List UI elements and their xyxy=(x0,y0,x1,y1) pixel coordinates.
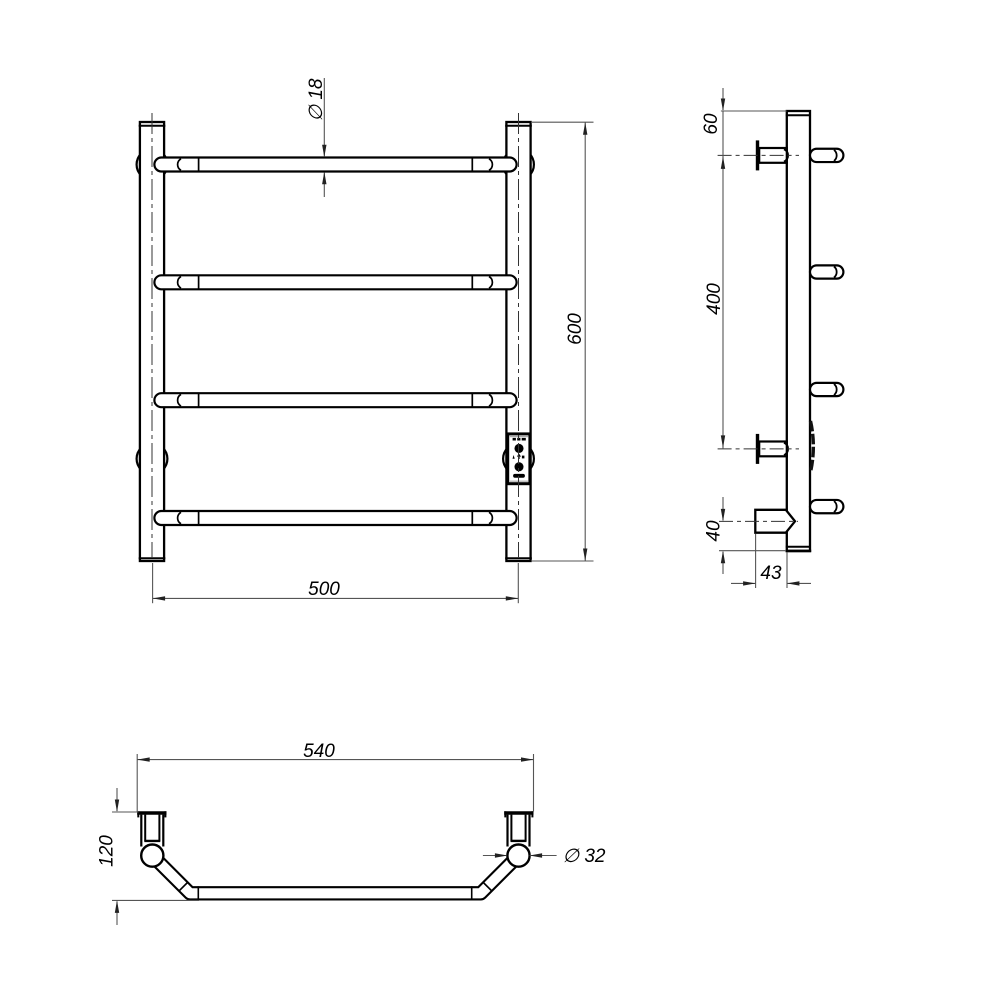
svg-text:∅ 18: ∅ 18 xyxy=(306,78,327,121)
svg-text:540: 540 xyxy=(303,741,335,762)
svg-text:400: 400 xyxy=(704,283,725,315)
svg-text:600: 600 xyxy=(565,313,586,345)
svg-text:∅ 32: ∅ 32 xyxy=(563,846,606,867)
svg-text:60: 60 xyxy=(701,113,722,135)
svg-text:40: 40 xyxy=(704,520,725,542)
svg-text:43: 43 xyxy=(760,563,782,584)
svg-text:120: 120 xyxy=(97,835,118,867)
svg-text:500: 500 xyxy=(308,579,340,600)
